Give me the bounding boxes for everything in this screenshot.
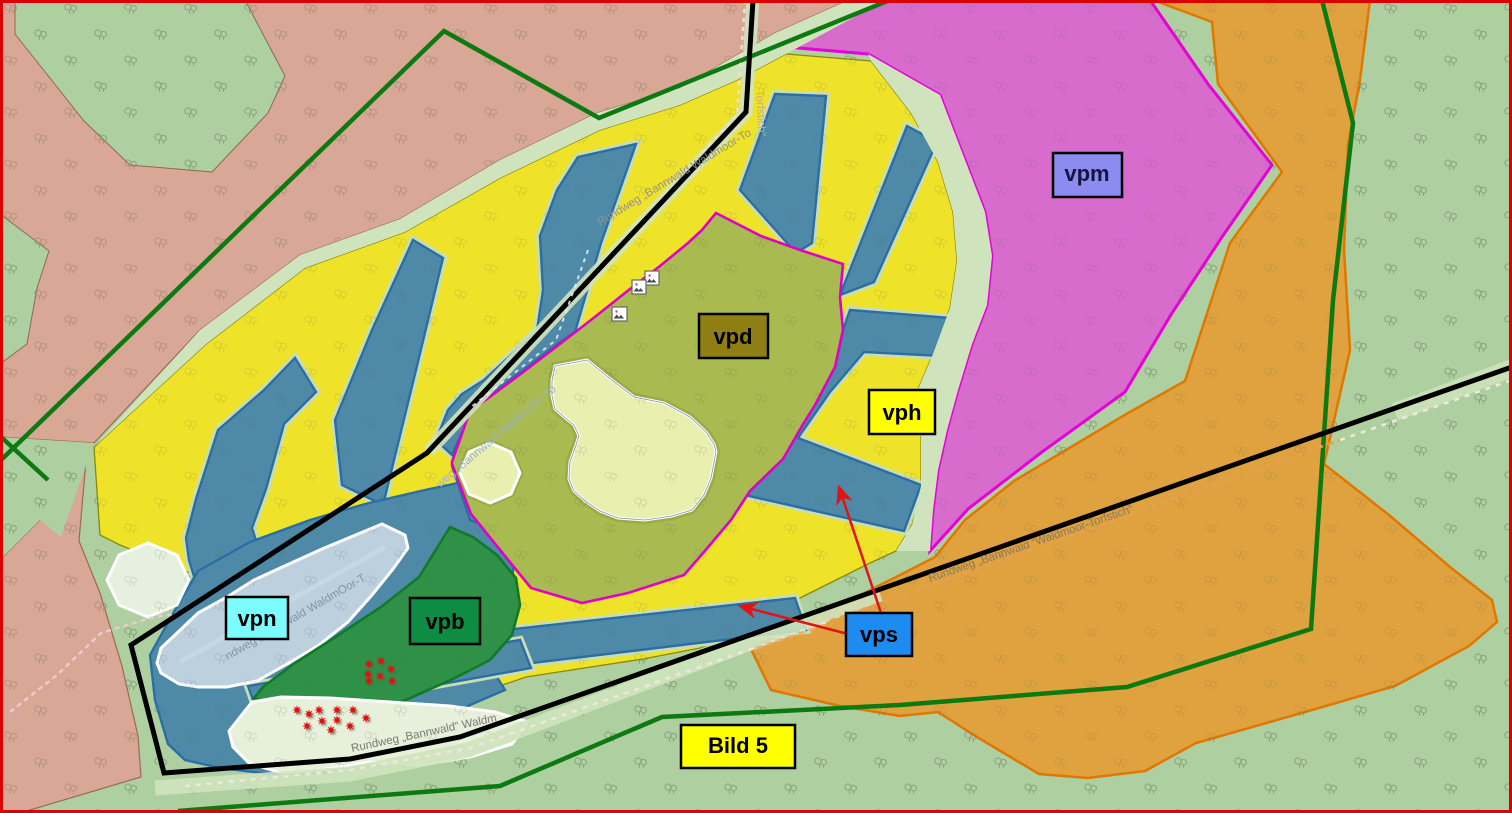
svg-text:Bild 5: Bild 5 (708, 733, 768, 758)
svg-text:vpm: vpm (1064, 161, 1109, 186)
svg-text:vpb: vpb (425, 609, 464, 634)
svg-text:vpn: vpn (237, 606, 276, 631)
svg-text:Torfstich“: Torfstich“ (753, 90, 767, 137)
svg-text:vps: vps (860, 622, 898, 647)
svg-text:vpd: vpd (713, 324, 752, 349)
svg-text:vph: vph (882, 400, 921, 425)
